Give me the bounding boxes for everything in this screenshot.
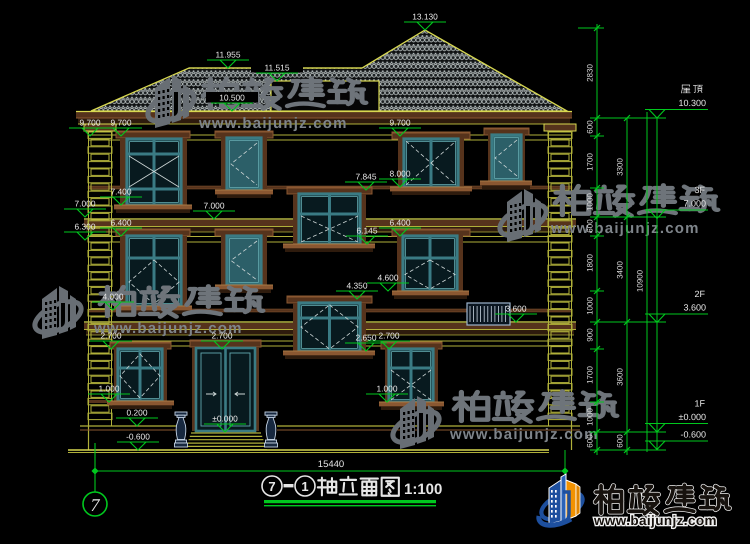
svg-text:±0.000: ±0.000 xyxy=(679,412,706,422)
svg-text:1800: 1800 xyxy=(586,254,595,272)
svg-text:1000: 1000 xyxy=(586,408,595,426)
svg-text:8.000: 8.000 xyxy=(390,169,411,179)
svg-text:9.700: 9.700 xyxy=(111,118,132,128)
svg-text:3.600: 3.600 xyxy=(683,303,706,313)
svg-text:6.145: 6.145 xyxy=(357,226,378,236)
svg-text:7.000: 7.000 xyxy=(204,201,225,211)
svg-text:9.700: 9.700 xyxy=(80,118,101,128)
svg-text:10900: 10900 xyxy=(636,269,645,292)
svg-text:7.000: 7.000 xyxy=(75,199,96,209)
svg-text:-0.600: -0.600 xyxy=(680,430,706,440)
svg-text:600: 600 xyxy=(586,434,595,448)
svg-text:6.400: 6.400 xyxy=(111,218,132,228)
svg-text:0.200: 0.200 xyxy=(127,408,148,418)
svg-text:1000: 1000 xyxy=(586,297,595,315)
svg-text:11.515: 11.515 xyxy=(265,63,290,73)
svg-text:900: 900 xyxy=(586,328,595,342)
svg-text:600: 600 xyxy=(616,434,625,448)
svg-text:9.700: 9.700 xyxy=(390,118,411,128)
svg-text:2.700: 2.700 xyxy=(101,331,122,341)
svg-text:±0.000: ±0.000 xyxy=(212,414,238,424)
svg-text:2F: 2F xyxy=(694,289,705,299)
svg-text:2.700: 2.700 xyxy=(379,331,400,341)
svg-text:1: 1 xyxy=(301,479,308,494)
svg-text:1.000: 1.000 xyxy=(99,384,120,394)
svg-text:7.000: 7.000 xyxy=(683,199,706,209)
svg-text:www.baijunjz.com: www.baijunjz.com xyxy=(449,426,599,443)
svg-text:4.600: 4.600 xyxy=(378,273,399,283)
svg-text:3.600: 3.600 xyxy=(506,304,527,314)
svg-text:www.baijunjz.com: www.baijunjz.com xyxy=(550,220,700,237)
svg-text:1:100: 1:100 xyxy=(404,481,442,498)
svg-text:2.700: 2.700 xyxy=(212,331,233,341)
svg-text:3300: 3300 xyxy=(616,158,625,176)
svg-text:1.000: 1.000 xyxy=(377,384,398,394)
svg-text:10.300: 10.300 xyxy=(678,98,706,108)
svg-text:1700: 1700 xyxy=(586,366,595,384)
svg-text:www.baijunjz.com: www.baijunjz.com xyxy=(593,513,717,528)
svg-text:4.000: 4.000 xyxy=(103,292,124,302)
svg-text:13.130: 13.130 xyxy=(412,12,438,22)
svg-text:3F: 3F xyxy=(694,185,705,195)
svg-text:2830: 2830 xyxy=(586,64,595,82)
svg-text:3400: 3400 xyxy=(616,261,625,279)
svg-text:7: 7 xyxy=(268,479,275,494)
svg-text:10.500: 10.500 xyxy=(219,93,245,103)
svg-text:3600: 3600 xyxy=(616,368,625,386)
svg-text:www.baijunjz.com: www.baijunjz.com xyxy=(198,115,348,132)
svg-text:600: 600 xyxy=(586,120,595,134)
svg-text:600: 600 xyxy=(586,219,595,233)
svg-text:1F: 1F xyxy=(694,399,705,409)
svg-text:1700: 1700 xyxy=(586,153,595,171)
svg-text:11.955: 11.955 xyxy=(216,50,241,60)
svg-text:4.350: 4.350 xyxy=(347,281,368,291)
svg-text:6.300: 6.300 xyxy=(75,222,96,232)
svg-text:-0.600: -0.600 xyxy=(126,432,150,442)
svg-text:7.845: 7.845 xyxy=(356,172,377,182)
svg-text:7: 7 xyxy=(91,495,101,515)
svg-text:1000: 1000 xyxy=(586,193,595,211)
svg-text:15440: 15440 xyxy=(318,459,344,470)
svg-text:6.400: 6.400 xyxy=(390,218,411,228)
svg-text:7.400: 7.400 xyxy=(111,187,132,197)
